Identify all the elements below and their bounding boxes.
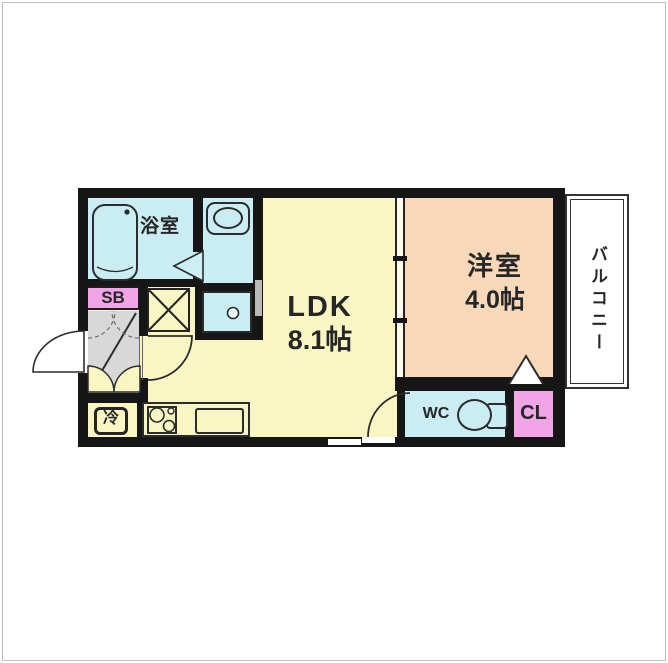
closet-label: CL — [514, 403, 553, 424]
western-room-name-label: 洋室 — [435, 253, 555, 280]
outer-wall-top — [78, 188, 565, 198]
wash-basin-bowl — [213, 207, 243, 229]
bottom-window-segment-2 — [362, 437, 395, 443]
ldk-name-label: LDK — [258, 292, 382, 322]
toilet-bowl — [457, 399, 492, 431]
partition-tick-lower — [393, 318, 407, 323]
partition-tick-upper — [393, 256, 407, 261]
balcony-label: バルコニー — [581, 220, 614, 380]
bathroom-label: 浴室 — [130, 217, 190, 237]
washroom-right-wall — [253, 198, 263, 288]
wc-left-wall — [397, 391, 405, 437]
ldk-size-label: 8.1帖 — [258, 326, 382, 354]
shoe-box-label: SB — [86, 289, 140, 307]
western-room-size-label: 4.0帖 — [435, 287, 555, 313]
wc-label: WC — [416, 406, 456, 423]
outer-wall-right — [553, 188, 565, 447]
front-door-opening — [78, 331, 88, 373]
storage-box — [147, 288, 190, 332]
entrance-floor — [88, 311, 139, 393]
outer-wall-bottom — [78, 437, 565, 447]
floorplan-canvas: 浴室 LDK 8.1帖 洋室 4.0帖 バルコニー SB WC CL 冷 — [0, 0, 668, 663]
kitchen-stove — [147, 406, 177, 434]
outer-wall-left — [78, 188, 88, 447]
wc-top-wall — [395, 377, 563, 391]
bottom-window-segment-1 — [328, 439, 361, 445]
sliding-door-partition — [395, 198, 405, 386]
bathroom-washroom-wall-upper — [193, 198, 203, 252]
bathtub — [92, 204, 138, 281]
kitchen-sink — [195, 408, 244, 434]
refrigerator-label: 冷 — [94, 411, 128, 428]
washing-machine-pan — [202, 291, 252, 333]
